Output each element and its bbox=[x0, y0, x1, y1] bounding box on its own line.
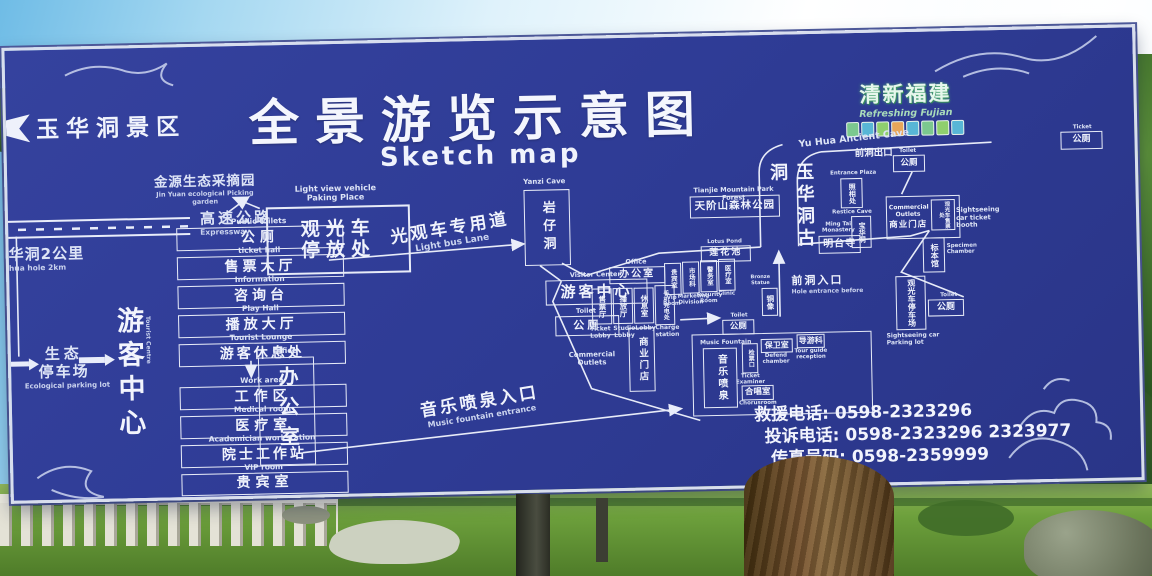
label-car-parking: Sightseeing car Parking lot bbox=[887, 331, 949, 346]
label-bronze-statue: Bronze Statue bbox=[745, 275, 775, 287]
corridor-ancient-cave: 玉华洞古洞 bbox=[764, 162, 818, 267]
label-front-exit: 前洞出口 bbox=[855, 144, 893, 159]
label-car-ticket-booth: Sightseeing car ticket booth bbox=[956, 206, 1010, 230]
tourist-centre-en: Tourist Centre bbox=[144, 316, 153, 426]
tree-trunk bbox=[744, 456, 894, 576]
arrow-to-tourist-centre bbox=[79, 357, 105, 364]
box-marketing: 市场科 bbox=[682, 261, 700, 293]
box-car-parking: 观光车停车场 bbox=[895, 276, 926, 331]
label-ticket-lobby: Ticket Lobby bbox=[586, 325, 614, 340]
expressway-road bbox=[8, 217, 190, 239]
label-front-entrance: 前洞入口 Hole entrance before bbox=[791, 271, 863, 295]
logo-cn: 清新福建 bbox=[840, 77, 971, 110]
label-clinic: Clinic bbox=[717, 291, 737, 298]
logo-en: Refreshing Fujian bbox=[841, 107, 971, 121]
label-commercial-outlets-center: Commercial Outlets bbox=[559, 350, 625, 368]
flourish-top-right bbox=[934, 36, 1097, 71]
label-ming-tai: Ming Tai Monastery bbox=[814, 221, 862, 235]
label-toilet-top: Toilet bbox=[893, 148, 923, 155]
box-chorus-room: 合唱室 bbox=[742, 385, 774, 401]
box-studio-lobby: 播放厅 bbox=[613, 288, 634, 324]
box-commercial-outlets-center: 商业门店 bbox=[628, 327, 655, 392]
box-bronze-statue: 铜像 bbox=[762, 288, 779, 316]
box-specimen: 标本馆 bbox=[923, 237, 946, 272]
label-toilet-fountain: Toilet bbox=[724, 312, 754, 319]
label-distance: 华洞2公里 hua hole 2km bbox=[9, 245, 120, 274]
box-ticket-toilet: 公厕 bbox=[1060, 131, 1102, 150]
box-toilet-top: 公厕 bbox=[893, 155, 925, 173]
box-vehicle-parking-place: 观光车 停放处 bbox=[266, 204, 411, 275]
arrow-to-eco-parking bbox=[11, 361, 29, 366]
rock-small bbox=[282, 506, 330, 524]
box-ticket-lobby: 售票厅 bbox=[592, 288, 613, 324]
sign-post-thin bbox=[596, 498, 608, 562]
rock-large bbox=[1024, 510, 1152, 576]
box-toilet-fountain: 公厕 bbox=[722, 319, 754, 335]
label-eco-parking-en: Ecological parking lot bbox=[11, 380, 123, 391]
box-office-tall: 办公室 bbox=[258, 356, 316, 465]
sketch-map-board: 玉华洞景区 全景游览示意图 Sketch map 清新福建 Refreshing… bbox=[1, 24, 1144, 504]
label-specimen: Specimen Chamber bbox=[947, 242, 991, 256]
box-toilet-right: 公厕 bbox=[928, 299, 964, 317]
scenic-area-name: 玉华洞景区 bbox=[36, 107, 187, 144]
area-logo-icon bbox=[6, 114, 31, 142]
photo-scene: 玉华洞景区 全景游览示意图 Sketch map 清新福建 Refreshing… bbox=[0, 0, 1152, 576]
label-fountain-entrance: 音乐喷泉入口 Music fountain entrance bbox=[418, 378, 542, 431]
box-clinic: 医疗室 bbox=[718, 259, 736, 291]
label-office-tall: Office bbox=[258, 346, 312, 356]
box-tour-guide: 导游科 bbox=[797, 334, 825, 349]
flourish-top-left bbox=[65, 63, 173, 87]
box-commercial-outlets-right: Commercial Outlets 商业门店 观光车售票处 bbox=[886, 195, 961, 240]
box-sightseeing-car-ticket: 观光车售票处 bbox=[931, 199, 956, 230]
box-office-small: 办公室 bbox=[609, 266, 665, 284]
label-picking-garden: 金源生态采摘园 Jin Yuan ecological Picking gard… bbox=[147, 173, 263, 207]
box-defend-chamber: 保卫室 bbox=[761, 338, 793, 353]
box-lotus-pond: 莲花池 bbox=[701, 245, 751, 262]
flourish-bottom-left bbox=[37, 466, 104, 499]
box-lobby: 休息室 bbox=[634, 287, 655, 323]
label-yanzi-cave: Yanzi Cave bbox=[509, 177, 579, 187]
bush bbox=[918, 500, 1014, 536]
label-light-view-vehicle: Light view vehicle Paking Place bbox=[265, 182, 405, 204]
label-tour-guide: Tour guide reception bbox=[791, 348, 831, 362]
box-vip-room-small: 贵宾室 bbox=[664, 263, 682, 295]
box-yanzi-cave: 岩仔洞 bbox=[523, 189, 571, 266]
box-security-room: 警务室 bbox=[700, 260, 718, 292]
box-entrance-photo: 照相处 bbox=[840, 178, 863, 208]
cloud-bottom-right3 bbox=[1044, 379, 1070, 389]
flourish-top-right2 bbox=[963, 68, 1029, 77]
sign-post-left bbox=[516, 494, 550, 576]
label-charge-station: Charge station bbox=[654, 324, 680, 339]
box-ming-tai: 明台寺 bbox=[818, 235, 860, 254]
label-entrance-photo: Entrance Plaza bbox=[829, 170, 877, 177]
box-vip-room: 贵宾室 bbox=[181, 471, 348, 496]
